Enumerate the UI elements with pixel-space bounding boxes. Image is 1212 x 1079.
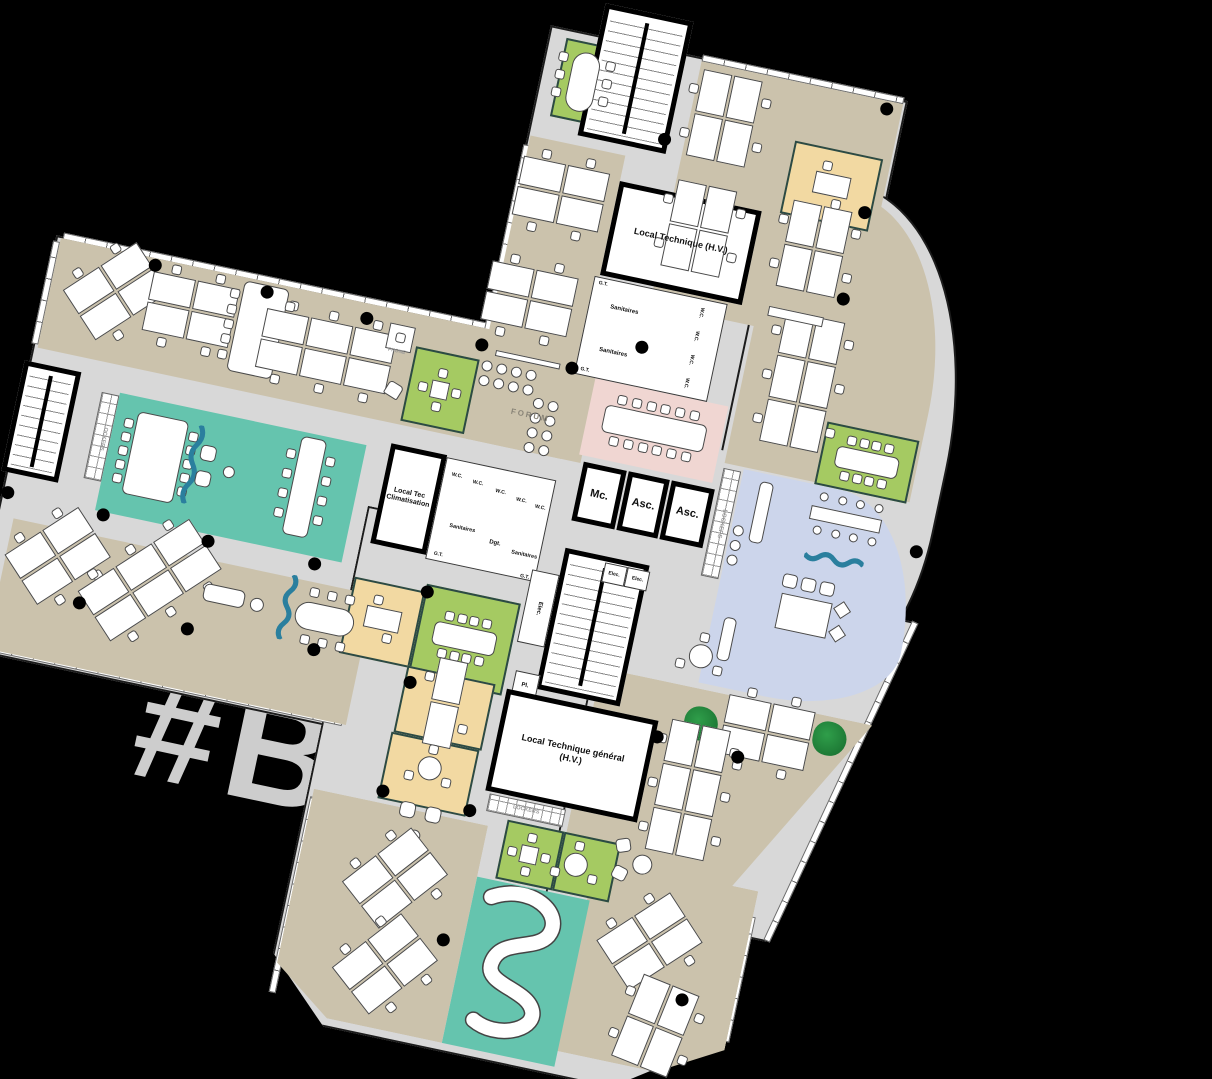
tbl bbox=[429, 379, 450, 400]
chair bbox=[843, 339, 855, 351]
chair bbox=[430, 401, 442, 413]
tbl bbox=[800, 577, 818, 594]
stool bbox=[526, 426, 539, 439]
chair bbox=[437, 368, 449, 380]
chair bbox=[699, 632, 711, 644]
desk bbox=[363, 605, 403, 634]
chair bbox=[846, 435, 858, 447]
desk bbox=[700, 186, 737, 234]
stool bbox=[510, 366, 523, 379]
chair bbox=[417, 381, 429, 393]
meeting-table bbox=[600, 404, 708, 453]
chair bbox=[403, 769, 415, 781]
stool bbox=[532, 397, 545, 410]
oval-table bbox=[287, 586, 361, 652]
stool bbox=[725, 553, 738, 566]
floor-plan: Local Technique (H.V.)SanitairesSanitair… bbox=[0, 0, 1212, 1079]
stool bbox=[481, 359, 494, 372]
desk bbox=[716, 120, 753, 168]
chair bbox=[444, 610, 456, 622]
stool bbox=[547, 400, 560, 413]
stool bbox=[525, 369, 538, 382]
desk bbox=[694, 725, 731, 773]
desk bbox=[512, 186, 560, 223]
placard-label: Pl. bbox=[520, 682, 529, 691]
desk bbox=[684, 769, 721, 817]
stool bbox=[819, 492, 830, 503]
stool bbox=[867, 536, 878, 547]
chair bbox=[456, 723, 468, 735]
tbl bbox=[774, 593, 832, 639]
chair bbox=[645, 401, 657, 413]
chair bbox=[334, 641, 346, 653]
stool bbox=[521, 383, 534, 396]
desk bbox=[789, 405, 826, 453]
chair bbox=[328, 310, 340, 322]
tbl bbox=[563, 50, 603, 115]
stool bbox=[523, 441, 536, 454]
chair bbox=[519, 866, 531, 878]
chair bbox=[710, 835, 722, 847]
chair bbox=[284, 300, 296, 312]
stool bbox=[728, 538, 741, 551]
desk bbox=[799, 361, 836, 409]
tbl bbox=[781, 573, 799, 590]
desk bbox=[556, 195, 604, 232]
stool bbox=[495, 363, 508, 376]
desk-cluster bbox=[253, 307, 398, 396]
chair bbox=[373, 594, 385, 606]
stool bbox=[415, 754, 443, 782]
chair bbox=[719, 791, 731, 803]
chair bbox=[550, 86, 562, 98]
chair bbox=[326, 590, 338, 602]
tbl bbox=[828, 625, 846, 643]
stool bbox=[812, 525, 823, 536]
chair bbox=[824, 427, 836, 439]
tbl bbox=[615, 837, 632, 853]
chair bbox=[357, 391, 369, 403]
chair bbox=[558, 51, 570, 63]
desk bbox=[524, 300, 572, 337]
chair bbox=[309, 587, 321, 599]
stool bbox=[540, 429, 553, 442]
floor-plan-scene: Local Technique (H.V.)SanitairesSanitair… bbox=[0, 0, 1212, 1079]
tbl bbox=[518, 844, 539, 865]
stool bbox=[837, 495, 848, 506]
chair bbox=[822, 160, 834, 172]
chair bbox=[647, 776, 659, 788]
chair bbox=[269, 373, 281, 385]
square-table bbox=[416, 366, 463, 413]
stool bbox=[477, 374, 490, 387]
tbl bbox=[202, 583, 247, 609]
desk-cluster bbox=[759, 310, 848, 455]
chair bbox=[834, 383, 846, 395]
desk bbox=[761, 734, 809, 771]
desk bbox=[806, 250, 843, 298]
desk bbox=[675, 813, 712, 861]
stool bbox=[249, 597, 266, 614]
chair bbox=[608, 435, 620, 447]
chair bbox=[226, 303, 238, 315]
chair bbox=[638, 820, 650, 832]
chair bbox=[851, 473, 863, 485]
chair bbox=[313, 382, 325, 394]
chair bbox=[752, 411, 764, 423]
stool bbox=[630, 853, 654, 877]
desk bbox=[142, 301, 190, 338]
chair bbox=[344, 594, 356, 606]
stool bbox=[507, 380, 520, 393]
element bbox=[809, 719, 849, 759]
stool bbox=[731, 524, 744, 537]
chair bbox=[526, 832, 538, 844]
stool bbox=[492, 377, 505, 390]
stool bbox=[855, 499, 866, 510]
stool bbox=[222, 465, 236, 479]
chair bbox=[549, 866, 561, 878]
plant bbox=[809, 719, 849, 759]
tbl bbox=[833, 601, 851, 619]
round-table bbox=[675, 630, 727, 682]
tbl bbox=[818, 581, 836, 598]
desk bbox=[815, 206, 852, 254]
stool bbox=[848, 533, 859, 544]
tbl bbox=[199, 444, 218, 463]
tbl bbox=[193, 469, 212, 488]
chair bbox=[761, 367, 773, 379]
chair bbox=[574, 840, 586, 852]
chair bbox=[858, 438, 870, 450]
chair bbox=[631, 397, 643, 409]
chair bbox=[428, 744, 440, 756]
chair bbox=[554, 68, 566, 80]
stool bbox=[537, 444, 550, 457]
chair bbox=[674, 657, 686, 669]
tbl bbox=[398, 800, 417, 819]
stool bbox=[687, 642, 715, 670]
chair bbox=[423, 670, 435, 682]
stool bbox=[562, 851, 590, 879]
chair bbox=[622, 439, 634, 451]
chair bbox=[771, 323, 783, 335]
square-table bbox=[505, 831, 552, 878]
chair bbox=[506, 845, 518, 857]
chair bbox=[616, 394, 628, 406]
desk bbox=[812, 171, 852, 200]
round-table bbox=[404, 742, 456, 794]
chair bbox=[637, 442, 649, 454]
stool bbox=[830, 529, 841, 540]
desk bbox=[480, 291, 528, 328]
chair bbox=[216, 348, 228, 360]
chair bbox=[838, 470, 850, 482]
round-table bbox=[550, 839, 602, 891]
chair bbox=[372, 319, 384, 331]
tbl bbox=[424, 806, 443, 825]
stool bbox=[874, 503, 885, 514]
tbl bbox=[610, 863, 630, 882]
desk bbox=[725, 76, 762, 124]
chair bbox=[456, 613, 468, 625]
